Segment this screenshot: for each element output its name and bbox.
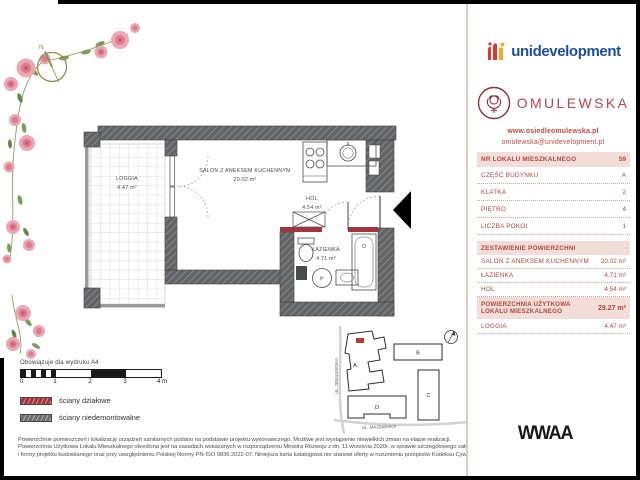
table-row: ŁAZIENKA 4.71 m² <box>477 269 630 283</box>
scale-segment <box>56 370 91 377</box>
omulewska-rose-icon <box>477 86 511 120</box>
project-logo-text: OMULEWSKA <box>517 95 630 111</box>
rose-leaves <box>7 40 106 350</box>
unit-location-marker <box>356 338 364 343</box>
balcony-door-leaf <box>170 187 175 217</box>
disclaimer-line: Powierzchnia Użytkowa Lokalu Mieszkalneg… <box>18 444 466 451</box>
structural-wall-label: ściany niedemontowalne <box>59 413 140 422</box>
row-value: 4 <box>622 206 626 213</box>
row-value: 4.71 m² <box>604 272 626 279</box>
scale-tick: 4 m <box>157 379 167 385</box>
row-label: LOGGIA <box>481 323 507 330</box>
decor-white-cover-left <box>0 0 11 358</box>
table-row: PIĘTRO 4 <box>477 201 630 218</box>
legal-disclaimer: Powierzchnie pomieszczeń i lokalizację u… <box>18 437 466 459</box>
scale-segment <box>91 370 126 377</box>
unit-table-header: NR LOKALU MIESZKALNEGO 59 <box>477 152 630 167</box>
area-summary-table: ZESTAWIENIE POWIERZCHNI SALON Z ANEKSEM … <box>477 241 630 334</box>
row-value: 20.02 m² <box>601 258 626 265</box>
room-label-lazienka: ŁAZIENKA <box>312 247 340 253</box>
building-d-label: D <box>375 405 379 411</box>
toilet-tank <box>298 238 314 244</box>
scale-tick: 1 <box>53 379 56 385</box>
table-row: KLATKA 2 <box>477 184 630 201</box>
legend-item-partition-walls: ściany działowe <box>20 396 190 405</box>
table-row: CZĘŚĆ BUDYNKU A <box>477 167 630 184</box>
washer-label: P <box>320 277 324 283</box>
project-logo: OMULEWSKA <box>470 86 636 120</box>
street-bottom-label: UL. MAJDAŃSKA <box>362 424 396 430</box>
legend-item-structural-walls: ściany niedemontowalne <box>20 413 190 422</box>
scale-tick: 2 <box>88 379 91 385</box>
building-a-label: A <box>353 363 357 369</box>
project-email-link[interactable]: omulewska@unidevelopment.pl <box>470 139 636 146</box>
row-value: A <box>622 172 626 179</box>
scale-tick: 0 <box>20 379 23 385</box>
building-c-label: C <box>427 393 431 399</box>
bathroom-shaft <box>296 266 307 280</box>
table-row: LOGGIA 4.47 m² <box>477 319 630 334</box>
building-a-footprint <box>345 331 386 391</box>
row-value: 4.54 m² <box>604 286 626 293</box>
stove-burner-icon <box>306 148 314 156</box>
scale-bar <box>20 369 162 378</box>
row-label: SALON Z ANEKSEM KUCHENNYM <box>481 258 589 265</box>
unit-info-table: NR LOKALU MIESZKALNEGO 59 CZĘŚĆ BUDYNKU … <box>477 152 630 235</box>
roses-decoration: N <box>0 0 150 360</box>
rose-blossoms <box>3 23 141 359</box>
table-row: SALON Z ANEKSEM KUCHENNYM 20.02 m² <box>477 255 630 269</box>
kitchen-fixtures <box>303 140 376 182</box>
total-label: POWIERZCHNIA UŻYTKOWA LOKALU MIESZKALNEG… <box>481 301 585 315</box>
decor-white-cover-top <box>0 0 58 9</box>
building-b-label: B <box>416 351 420 357</box>
walls-partition <box>280 227 378 232</box>
sitemap-compass-icon <box>445 331 458 344</box>
disclaimer-line: Powierzchnie pomieszczeń i lokalizację u… <box>18 437 466 444</box>
sidebar-divider <box>466 4 468 476</box>
kitchen-sink-icon <box>340 145 356 161</box>
scale-segment <box>21 370 56 377</box>
row-label: HOL <box>481 286 495 293</box>
bathtub <box>352 234 376 290</box>
room-area-lazienka: 4.71 m² <box>316 256 336 262</box>
developer-logo: unidevelopment <box>470 40 636 62</box>
row-label: ŁAZIENKA <box>481 272 514 279</box>
balcony-door-swing <box>177 186 208 217</box>
architect-logo-text: WWAA <box>518 422 573 444</box>
entrance-door-swing <box>348 196 380 228</box>
compass-north-label: N <box>39 44 44 51</box>
scale-tick: 3 <box>123 379 126 385</box>
structural-wall-swatch <box>20 414 52 422</box>
toilet-bowl <box>299 245 313 262</box>
balcony-door-leaf <box>170 156 175 186</box>
row-value: 2 <box>622 189 626 196</box>
wardrobe <box>293 212 325 227</box>
scale-ticks: 0 1 2 3 4 m <box>20 379 170 388</box>
row-label: LICZBA POKOI <box>481 223 527 230</box>
disclaimer-line: i formy projektu budowlanego oraz przy u… <box>18 452 466 459</box>
scale-segment <box>126 370 161 377</box>
project-website-link[interactable]: www.osiedleomulewska.pl <box>470 128 636 135</box>
row-value: 1 <box>622 223 626 230</box>
table-row: LICZBA POKOI 1 <box>477 218 630 235</box>
usable-area-total-row: POWIERZCHNIA UŻYTKOWA LOKALU MIESZKALNEG… <box>477 297 630 319</box>
stove-burner-icon <box>306 160 314 168</box>
stove-burner-icon <box>316 160 324 168</box>
room-label-salon: SALON Z ANEKSEM KUCHENNYM <box>199 168 291 174</box>
bathroom-fixtures <box>298 234 376 290</box>
developer-logo-text: unidevelopment <box>511 43 620 60</box>
print-scale-note: Obowiązuje dla wydruku A4 <box>20 360 190 366</box>
row-label: PIĘTRO <box>481 206 506 213</box>
partition-wall-label: ściany działowe <box>59 396 111 405</box>
catalog-page: N <box>0 0 640 480</box>
area-table-title: ZESTAWIENIE POWIERZCHNI <box>481 245 576 252</box>
bathroom-sink <box>336 270 358 285</box>
rose-stems <box>10 34 128 354</box>
room-label-hol: HOL <box>306 196 318 202</box>
street-bottom-line <box>334 420 468 425</box>
unidevelopment-icon <box>485 40 507 62</box>
scale-and-legend: Obowiązuje dla wydruku A4 0 1 2 3 4 m śc… <box>20 360 190 422</box>
unit-number-value: 59 <box>619 156 626 163</box>
row-label: KLATKA <box>481 189 506 196</box>
stove-burner-icon <box>316 148 324 156</box>
table-row: HOL 4.54 m² <box>477 283 630 297</box>
partition-wall-swatch <box>20 397 52 405</box>
total-value: 29.27 m² <box>598 305 626 312</box>
street-left-label: UL. OMULEWSKA <box>334 358 339 394</box>
area-table-header: ZESTAWIENIE POWIERZCHNI <box>477 241 630 255</box>
sidebar: unidevelopment OMULEWSKA www.osiedleomul… <box>470 0 636 480</box>
shaft-box <box>369 161 379 175</box>
room-area-salon: 20.02 m² <box>234 177 257 183</box>
architect-logo: WWAA <box>516 419 590 445</box>
row-label: CZĘŚĆ BUDYNKU <box>481 172 538 179</box>
site-map: A B C D UL. OMULEWSKA UL. MAJDAŃSKA <box>332 326 470 436</box>
shaft-box <box>369 145 380 158</box>
row-value: 4.47 m² <box>604 323 626 330</box>
room-area-hol: 4.54 m² <box>302 205 322 211</box>
entrance-arrow-icon <box>393 191 411 229</box>
unit-number-label: NR LOKALU MIESZKALNEGO <box>481 156 576 163</box>
street-left-line <box>340 326 344 434</box>
